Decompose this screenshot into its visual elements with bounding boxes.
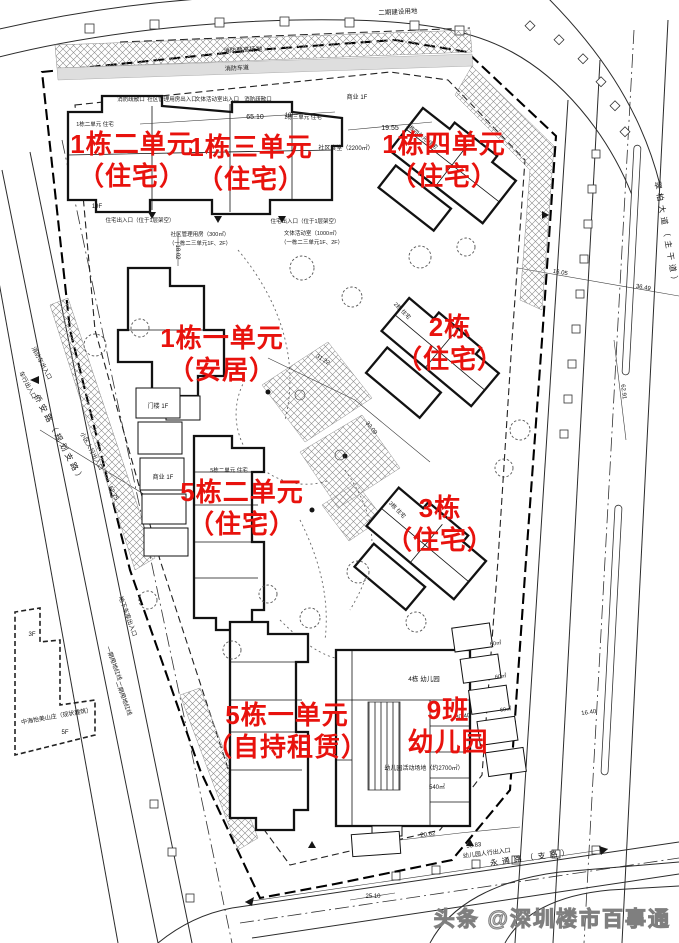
plate-1-3: 1栋三单元 住宅 [284, 113, 322, 121]
road-name-right: 翠柏大道（主干道） [653, 180, 679, 288]
note-mgmt-entrance: 社区管理用房出入口 [147, 95, 197, 103]
note-culture-entrance: 文体活动室出入口 [195, 95, 239, 103]
note-existing-building: 中海怡美山庄（现状建筑） [20, 706, 92, 726]
label-kindergarten: 9班 幼儿园 [407, 695, 488, 758]
label-line2: （住宅） [180, 509, 303, 541]
label-building1-unit3: 1栋三单元 （住宅） [189, 132, 312, 195]
utility-block [351, 831, 400, 856]
dim-25-10: 25.10 [365, 894, 381, 900]
label-building1-unit1: 1栋一单元 （安居） [160, 323, 283, 386]
dim-18-02: 18.02 [174, 244, 180, 260]
label-line2: （住宅） [70, 161, 193, 193]
label-building3: 3栋 （住宅） [386, 493, 494, 556]
note-fire-vehicle-entry: 消防车出入口 [30, 345, 54, 381]
note-gatehouse: 门楼 1F [148, 402, 169, 410]
dim-62-91: 62.91 [619, 384, 627, 400]
site-plan-canvas: 65.10 19.55 社区食堂（2200㎡） 消防登高场地 消防车道 消防疏散… [0, 0, 679, 943]
note-culture-room-floors: （一栋二三单元1F、2F） [281, 238, 343, 246]
label-line1: 1栋三单元 [189, 132, 312, 164]
note-5f: 5F [61, 730, 68, 736]
plate-5-2: 5栋二单元 住宅 [210, 466, 248, 474]
note-mgmt-room: 社区管理用房（300㎡） [171, 230, 230, 238]
note-fire-exit-2: 消防疏散口 [244, 95, 272, 103]
note-residence-entry-1: 住宅出入口（位于1层架空） [105, 216, 174, 224]
existing-building-outline [15, 608, 95, 755]
label-line1: 1栋二单元 [70, 129, 193, 161]
label-line1: 1栋一单元 [160, 323, 283, 355]
plate-1-2: 1栋二单元 住宅 [76, 120, 114, 128]
note-residence-entry-2: 住宅出入口（位于1层架空） [270, 217, 339, 225]
label-building1-unit2: 1栋二单元 （住宅） [70, 129, 193, 192]
label-line2: （住宅） [396, 344, 504, 376]
dim-20-62: 20.62 [420, 831, 436, 839]
note-canteen: 社区食堂（2200㎡） [318, 144, 373, 152]
note-culture-room: 文体活动室（1000㎡） [284, 229, 340, 237]
label-line1: 2栋 [396, 312, 504, 344]
note-kindergarten-playground: 幼儿园活动场地（约2700㎡） [384, 764, 463, 772]
label-building5-unit2: 5栋二单元 （住宅） [180, 477, 303, 540]
note-kindergarten-4: 4栋 幼儿园 [408, 674, 439, 683]
label-line1: 3栋 [386, 493, 494, 525]
note-commercial-1f-left: 商业 1F [153, 473, 174, 481]
label-building1-unit4: 1栋四单元 （住宅） [382, 129, 505, 192]
label-line1: 9班 [407, 695, 488, 727]
note-540: 540㎡ [429, 783, 445, 791]
note-fire-exit-1: 消防疏散口 [117, 95, 145, 103]
right-road-centerline [584, 30, 634, 943]
kindergarten-play-stripes [368, 702, 400, 790]
label-line2: （自持租赁） [206, 732, 368, 764]
label-line2: （住宅） [386, 525, 494, 557]
dim-16-40: 16.40 [581, 709, 597, 717]
note-19f-b: 19F [92, 204, 103, 210]
label-line1: 5栋二单元 [180, 477, 303, 509]
dim-36-49: 36.49 [635, 284, 651, 293]
label-line2: （安居） [160, 355, 283, 387]
dim-16-05: 16.05 [552, 269, 568, 278]
label-building5-unit1: 5栋一单元 （自持租赁） [206, 700, 368, 763]
dim-65-10: 65.10 [246, 114, 264, 121]
label-building2: 2栋 （住宅） [396, 312, 504, 375]
label-line1: 5栋一单元 [206, 700, 368, 732]
road-name-left: 侨安路（规划支路） [32, 393, 87, 485]
note-commercial-1f-top: 商业 1F [347, 93, 368, 101]
note-phase2-land: 二期建设用地 [378, 6, 418, 17]
dim-50-83: 50.83 [466, 842, 482, 850]
watermark: 头条 @深圳楼市百事通 [434, 903, 671, 933]
label-line2: （住宅） [382, 161, 505, 193]
note-3f: 3F [28, 632, 35, 638]
label-line2: （住宅） [189, 164, 312, 196]
road-median [601, 505, 622, 775]
note-phase1-redline: 一期用地红线 [104, 645, 124, 682]
label-line2: 幼儿园 [407, 727, 488, 759]
note-phase2-redline: 二期用地红线 [114, 680, 134, 717]
label-line1: 1栋四单元 [382, 129, 505, 161]
